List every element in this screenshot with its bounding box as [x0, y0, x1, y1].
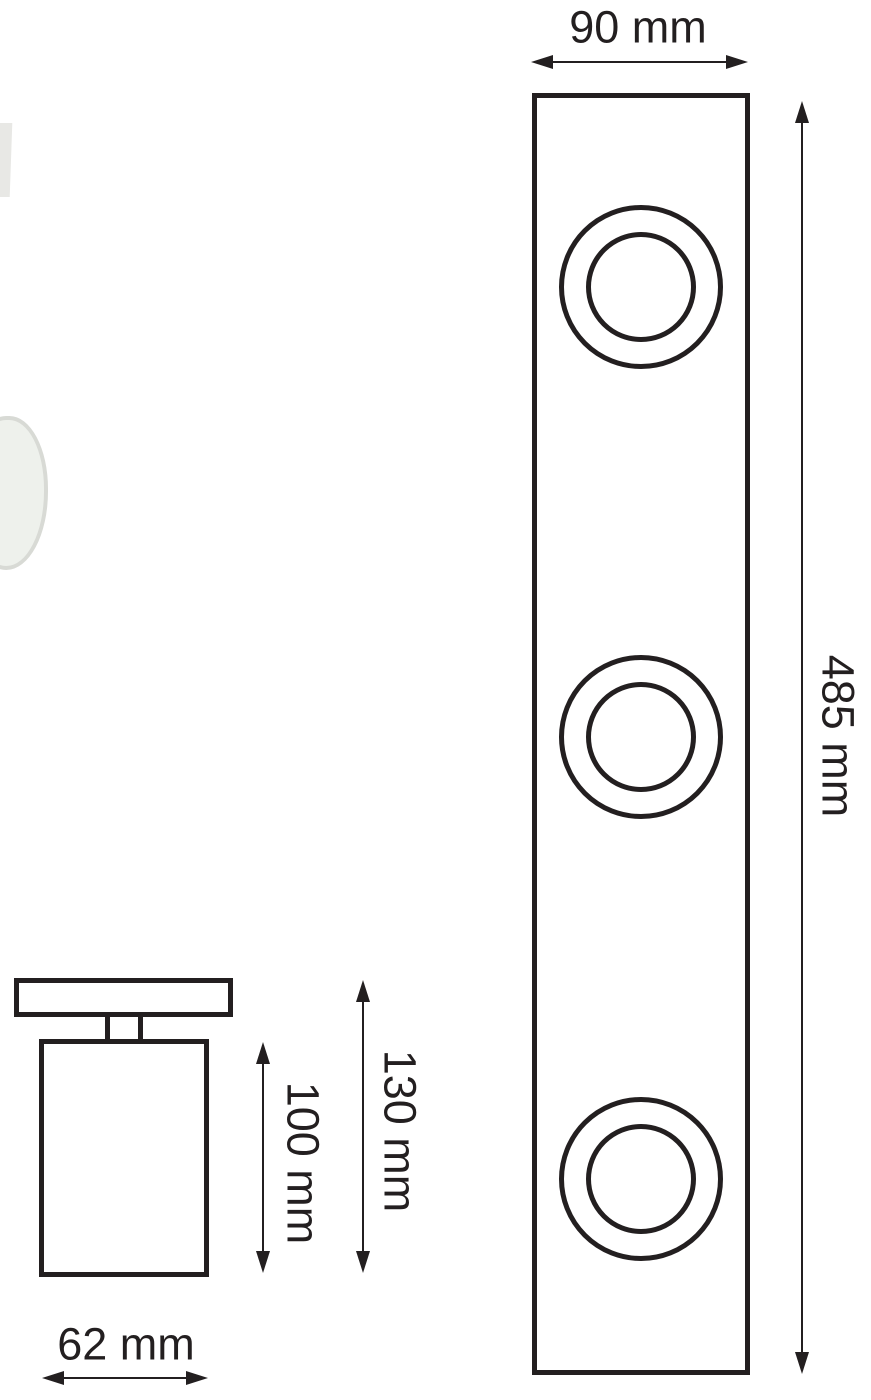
front-height-label: 485 mm — [816, 655, 861, 818]
arrowhead-down-icon — [795, 1352, 809, 1374]
side-body-height-label: 100 mm — [281, 1082, 326, 1245]
arrowhead-down-icon — [256, 1251, 270, 1273]
dimension-line — [362, 983, 364, 1270]
side-view-mounting-plate — [14, 978, 233, 1017]
side-view-lamp-body — [39, 1039, 209, 1277]
dimension-line — [262, 1045, 264, 1270]
side-width-label: 62 mm — [57, 1322, 195, 1367]
front-height-dimension-arrow — [794, 101, 810, 1374]
dimension-line — [801, 104, 803, 1371]
spot-1-inner-circle — [586, 232, 696, 342]
product-photo-fragment-mount — [0, 123, 12, 197]
side-view-stem — [105, 1017, 143, 1039]
side-width-dimension-arrow — [42, 1370, 208, 1386]
dimension-diagram: 90 mm 485 mm 100 mm 130 mm 62 mm — [0, 0, 871, 1400]
front-width-label: 90 mm — [569, 5, 707, 50]
side-body-height-dimension-arrow — [255, 1042, 271, 1273]
arrowhead-down-icon — [356, 1251, 370, 1273]
front-width-dimension-arrow — [531, 54, 748, 70]
product-photo-fragment-lamp-head — [0, 416, 48, 570]
spot-3-inner-circle — [586, 1124, 696, 1234]
dimension-line — [534, 61, 745, 63]
spot-2-inner-circle — [586, 682, 696, 792]
arrowhead-right-icon — [186, 1371, 208, 1385]
side-total-height-label: 130 mm — [378, 1050, 423, 1213]
side-total-height-dimension-arrow — [355, 980, 371, 1273]
dimension-line — [45, 1377, 205, 1379]
arrowhead-right-icon — [726, 55, 748, 69]
